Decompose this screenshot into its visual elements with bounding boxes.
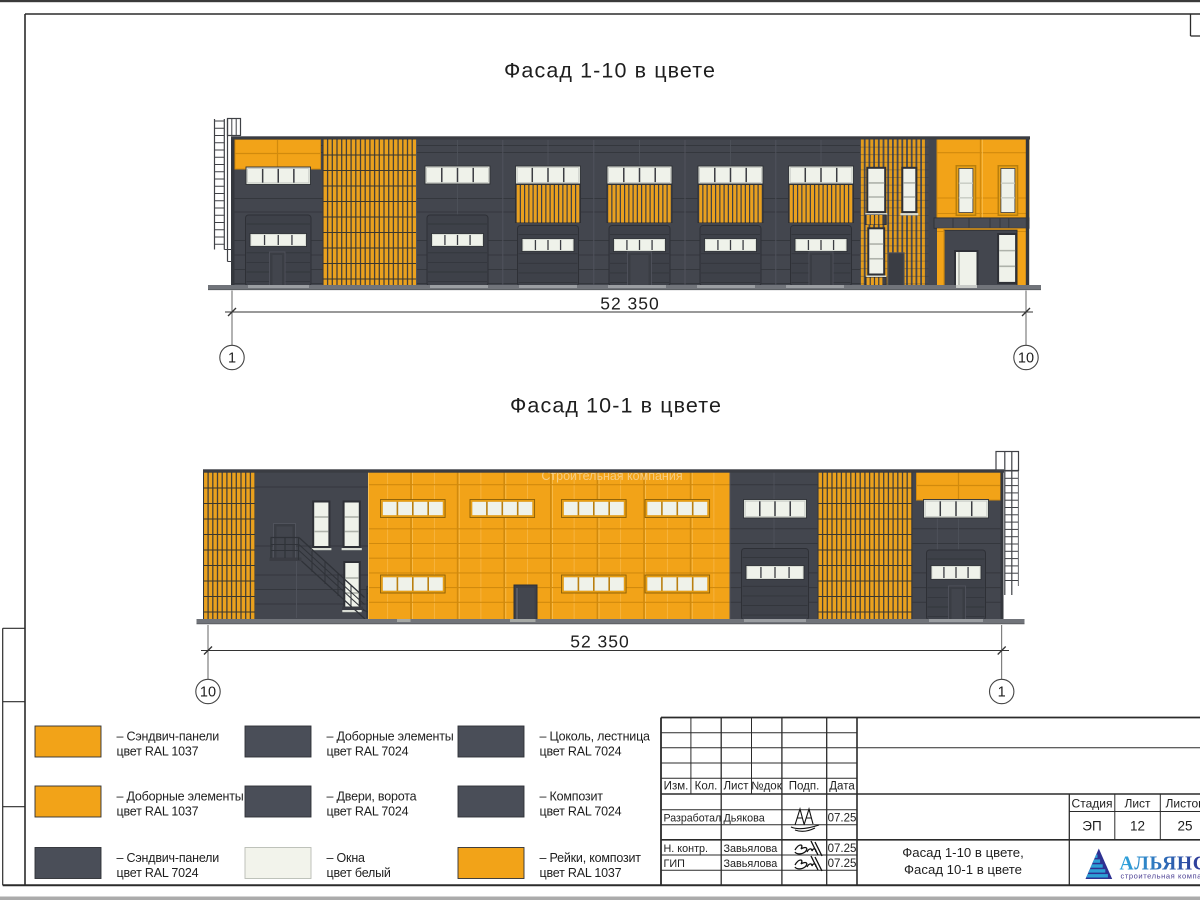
- svg-text:Подп.: Подп.: [789, 781, 820, 793]
- svg-text:цвет белый: цвет белый: [327, 866, 391, 880]
- svg-text:– Рейки, композит: – Рейки, композит: [540, 851, 642, 865]
- svg-text:10: 10: [1018, 351, 1034, 367]
- svg-text:– Сэндвич-панели: – Сэндвич-панели: [117, 851, 220, 865]
- svg-text:– Цоколь, лестница: – Цоколь, лестница: [540, 730, 651, 744]
- svg-text:07.25: 07.25: [828, 843, 857, 855]
- svg-text:Стадия: Стадия: [1072, 797, 1113, 811]
- svg-text:– Доборные элементы: – Доборные элементы: [327, 730, 454, 744]
- svg-text:Кол.: Кол.: [695, 781, 718, 793]
- svg-text:Лист: Лист: [1124, 797, 1151, 811]
- svg-text:Дьякова: Дьякова: [724, 813, 765, 825]
- svg-text:– Композит: – Композит: [540, 790, 604, 804]
- svg-text:Лист: Лист: [724, 781, 750, 793]
- svg-text:– Двери, ворота: – Двери, ворота: [327, 790, 417, 804]
- svg-text:– Сэндвич-панели: – Сэндвич-панели: [117, 730, 220, 744]
- svg-text:10: 10: [200, 685, 216, 701]
- svg-text:цвет RAL 1037: цвет RAL 1037: [117, 805, 199, 819]
- svg-text:Фасад 1-10 в цвете,: Фасад 1-10 в цвете,: [902, 845, 1024, 860]
- svg-text:25: 25: [1177, 819, 1192, 834]
- svg-text:Листов: Листов: [1166, 797, 1200, 811]
- svg-text:Н. контр.: Н. контр.: [664, 843, 709, 855]
- svg-text:52 350: 52 350: [600, 294, 660, 314]
- svg-text:ЭП: ЭП: [1082, 819, 1101, 834]
- svg-text:Завьялова: Завьялова: [724, 858, 778, 870]
- svg-text:Фасад 10-1 в цвете: Фасад 10-1 в цвете: [904, 862, 1022, 877]
- svg-text:07.25: 07.25: [828, 858, 857, 870]
- svg-text:– Окна: – Окна: [327, 851, 366, 865]
- svg-text:Разработал: Разработал: [664, 813, 722, 825]
- svg-text:цвет RAL 1037: цвет RAL 1037: [540, 866, 622, 880]
- svg-text:цвет RAL 1037: цвет RAL 1037: [117, 745, 199, 759]
- svg-text:Фасад 10-1 в цвете: Фасад 10-1 в цвете: [510, 394, 722, 418]
- svg-text:№док: №док: [751, 781, 782, 793]
- svg-text:цвет RAL 7024: цвет RAL 7024: [327, 805, 409, 819]
- svg-text:07.25: 07.25: [828, 813, 857, 825]
- svg-text:– Доборные элементы: – Доборные элементы: [117, 790, 244, 804]
- svg-text:1: 1: [228, 351, 236, 367]
- svg-text:цвет RAL 7024: цвет RAL 7024: [327, 745, 409, 759]
- svg-text:цвет RAL 7024: цвет RAL 7024: [540, 805, 622, 819]
- svg-text:Изм.: Изм.: [664, 781, 689, 793]
- svg-text:Дата: Дата: [829, 781, 855, 793]
- svg-text:ГИП: ГИП: [664, 858, 685, 870]
- svg-text:12: 12: [1130, 819, 1145, 834]
- svg-text:Завьялова: Завьялова: [724, 843, 778, 855]
- svg-text:52 350: 52 350: [570, 632, 630, 652]
- svg-text:Фасад 1-10 в цвете: Фасад 1-10 в цвете: [504, 59, 716, 83]
- svg-text:строительная компания: строительная компания: [1121, 872, 1200, 881]
- svg-text:цвет RAL 7024: цвет RAL 7024: [117, 866, 199, 880]
- svg-text:цвет RAL 7024: цвет RAL 7024: [540, 745, 622, 759]
- svg-text:1: 1: [998, 685, 1006, 701]
